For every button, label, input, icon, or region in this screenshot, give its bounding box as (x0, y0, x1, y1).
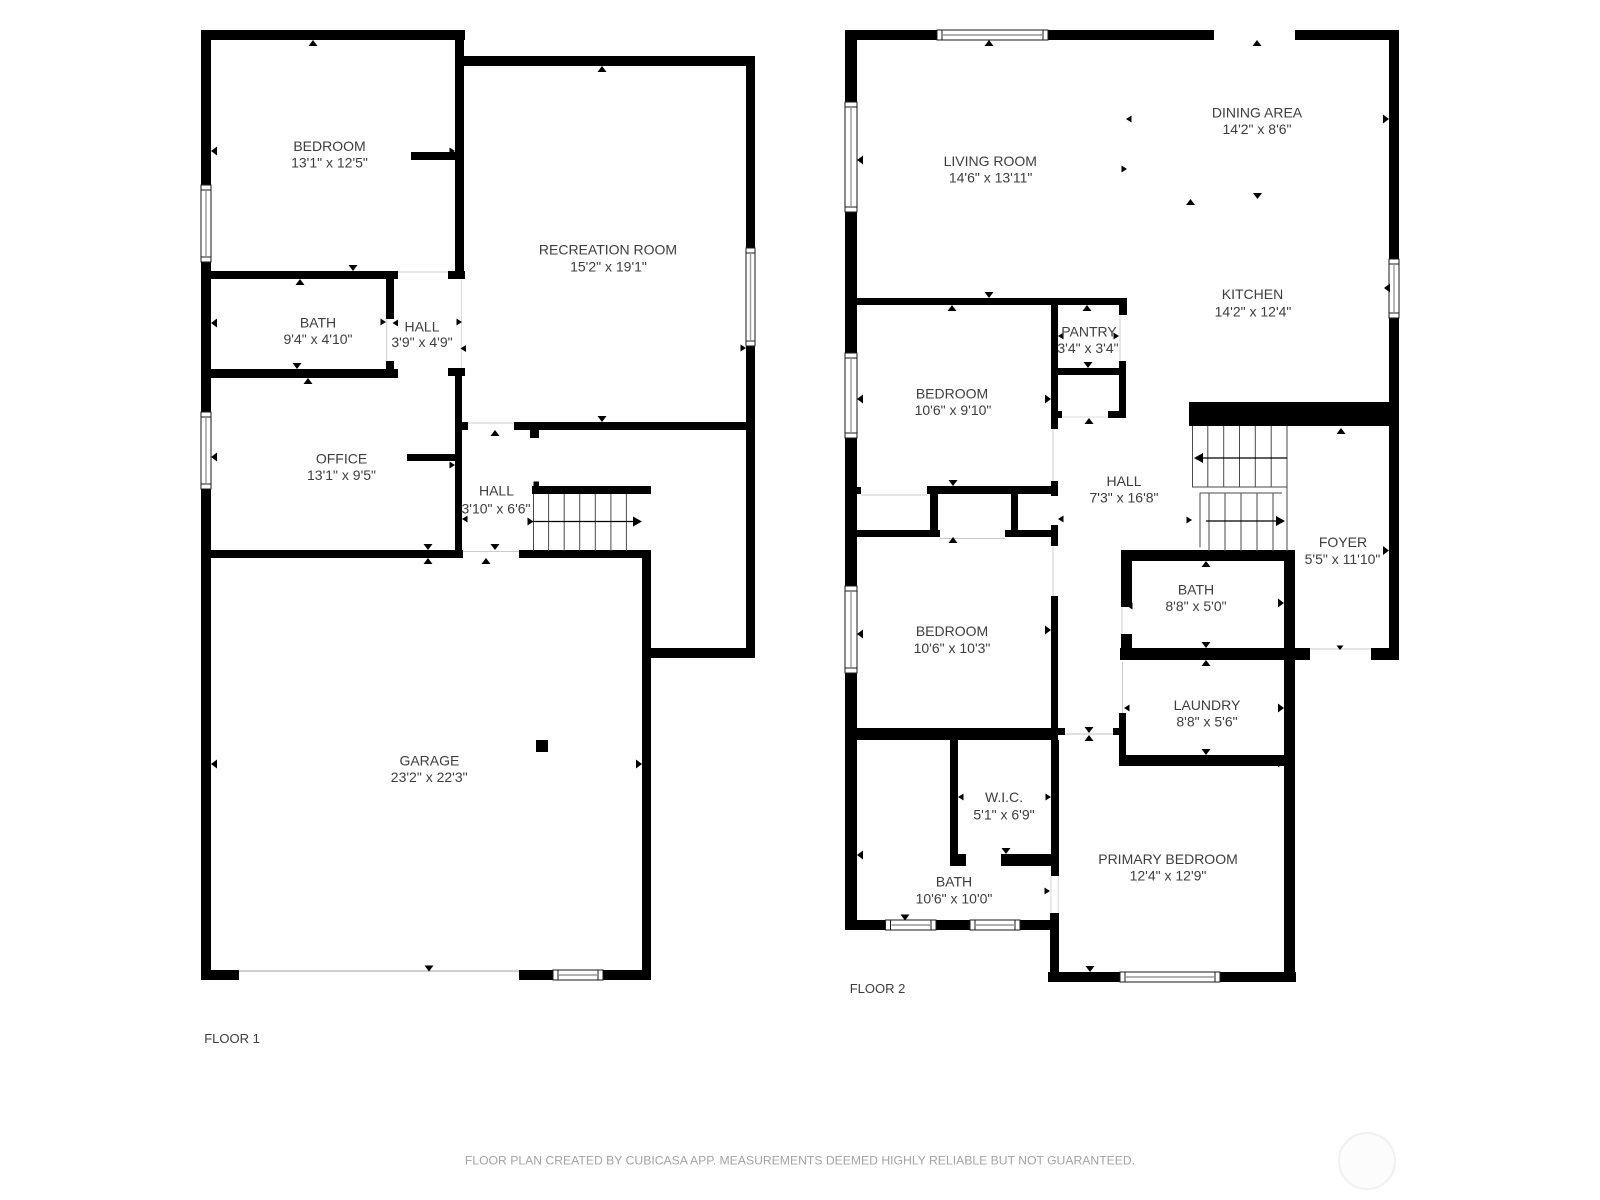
svg-text:14'2" x 8'6": 14'2" x 8'6" (1223, 121, 1292, 137)
svg-text:HALL: HALL (404, 319, 439, 335)
svg-text:RECREATION ROOM: RECREATION ROOM (539, 242, 677, 258)
svg-text:OFFICE: OFFICE (316, 451, 367, 467)
svg-text:5'1" x 6'9": 5'1" x 6'9" (973, 807, 1034, 823)
svg-text:FLOOR 1: FLOOR 1 (204, 1031, 260, 1046)
svg-text:3'9" x 4'9": 3'9" x 4'9" (391, 334, 452, 350)
svg-text:LAUNDRY: LAUNDRY (1174, 697, 1241, 713)
svg-text:BATH: BATH (1178, 582, 1214, 598)
svg-text:PANTRY: PANTRY (1061, 324, 1117, 340)
svg-text:3'4" x 3'4": 3'4" x 3'4" (1057, 340, 1118, 356)
svg-text:10'6" x 10'0": 10'6" x 10'0" (916, 891, 993, 907)
svg-text:10'6" x 10'3": 10'6" x 10'3" (914, 640, 991, 656)
svg-text:DINING AREA: DINING AREA (1212, 104, 1303, 120)
svg-text:23'2" x 22'3": 23'2" x 22'3" (391, 769, 468, 785)
svg-text:14'6" x 13'11": 14'6" x 13'11" (949, 170, 1033, 186)
svg-text:LIVING ROOM: LIVING ROOM (944, 153, 1037, 169)
svg-text:GARAGE: GARAGE (399, 752, 459, 768)
svg-text:12'4" x 12'9": 12'4" x 12'9" (1130, 868, 1207, 884)
svg-text:BEDROOM: BEDROOM (293, 138, 365, 154)
svg-text:10'6" x 9'10": 10'6" x 9'10" (915, 402, 992, 418)
svg-text:BATH: BATH (300, 314, 336, 330)
svg-text:13'1" x 12'5": 13'1" x 12'5" (291, 155, 368, 171)
svg-text:BEDROOM: BEDROOM (916, 623, 988, 639)
svg-text:BEDROOM: BEDROOM (916, 386, 988, 402)
svg-text:HALL: HALL (479, 483, 514, 499)
svg-text:14'2" x 12'4": 14'2" x 12'4" (1215, 304, 1292, 320)
svg-text:FOYER: FOYER (1319, 534, 1367, 550)
svg-text:FLOOR PLAN CREATED BY CUBICASA: FLOOR PLAN CREATED BY CUBICASA APP. MEAS… (465, 1154, 1135, 1168)
svg-text:3'10" x 6'6": 3'10" x 6'6" (462, 501, 531, 517)
svg-text:8'8" x 5'0": 8'8" x 5'0" (1165, 598, 1226, 614)
svg-text:W.I.C.: W.I.C. (985, 789, 1023, 805)
svg-text:BATH: BATH (936, 874, 972, 890)
svg-text:8'8" x 5'6": 8'8" x 5'6" (1176, 714, 1237, 730)
svg-text:15'2" x 19'1": 15'2" x 19'1" (570, 259, 647, 275)
svg-text:7'3" x 16'8": 7'3" x 16'8" (1090, 490, 1159, 506)
svg-text:PRIMARY BEDROOM: PRIMARY BEDROOM (1098, 851, 1238, 867)
svg-text:5'5" x 11'10": 5'5" x 11'10" (1305, 551, 1381, 567)
svg-text:FLOOR 2: FLOOR 2 (850, 981, 906, 996)
svg-text:HALL: HALL (1106, 473, 1141, 489)
svg-text:13'1" x 9'5": 13'1" x 9'5" (307, 467, 376, 483)
svg-text:KITCHEN: KITCHEN (1222, 286, 1283, 302)
svg-text:9'4" x 4'10": 9'4" x 4'10" (284, 331, 353, 347)
